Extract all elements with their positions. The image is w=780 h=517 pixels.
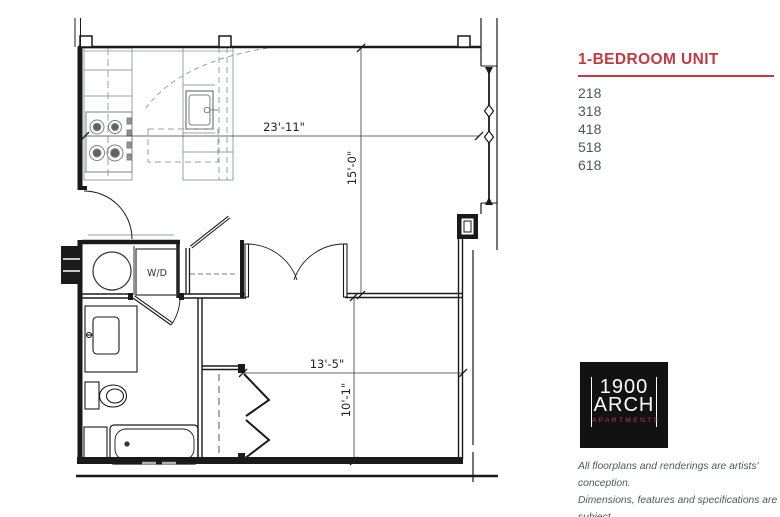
washer-dryer-label: W/D [147,268,167,279]
unit-number: 318 [578,102,601,120]
brand-logo-frame: 1900 ARCH APARTMENTS [591,377,657,427]
bathroom [84,296,198,464]
dim-label-width-main: 23'-11" [263,120,305,134]
stove [86,112,132,172]
unit-number-list: 218 318 418 518 618 [578,84,601,174]
page-title: 1-BEDROOM UNIT [578,51,774,77]
unit-number: 418 [578,120,601,138]
brand-logo: 1900 ARCH APARTMENTS [580,362,668,448]
bathroom-door [133,296,180,325]
brand-logo-apartments: APARTMENTS [592,417,656,424]
kitchen-sink [186,91,218,129]
floor-plan: 23'-11" 15'-0" 13'-5" 10'-1" [0,0,560,517]
unit-number: 518 [578,138,601,156]
kitchen [84,47,268,235]
window-wall [481,18,497,250]
double-door [245,244,347,297]
dimensions [81,44,483,465]
brand-logo-arch: ARCH [592,396,656,414]
floorplan-page: 23'-11" 15'-0" 13'-5" 10'-1" [0,0,780,517]
unit-number: 218 [578,84,601,102]
disclaimer-line: Dimensions, features and specifications … [578,492,780,517]
dim-label-height-main: 15'-0" [345,151,359,186]
toilet [85,382,127,409]
dim-label-bedroom-width: 13'-5" [310,357,345,371]
disclaimer-text: All floorplans and renderings are artist… [578,458,780,517]
vanity-sink [85,306,137,372]
bifold-door [244,374,269,416]
dim-label-bedroom-height: 10'-1" [339,383,353,418]
disclaimer-line: All floorplans and renderings are artist… [578,458,780,492]
walls [61,18,498,482]
structural-column [457,214,478,239]
unit-number: 618 [578,156,601,174]
bifold-door [244,420,269,459]
